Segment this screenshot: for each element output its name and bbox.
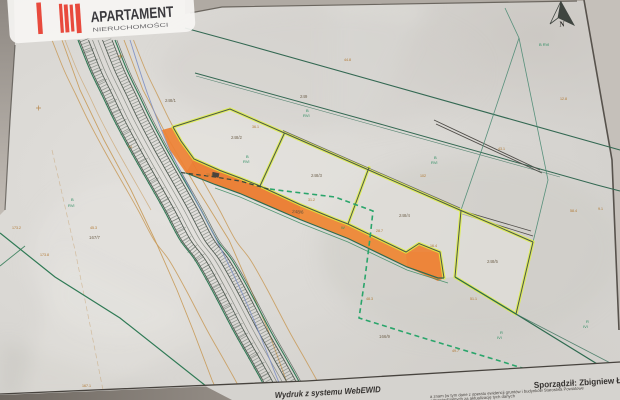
svg-text:248/3: 248/3 — [311, 173, 323, 178]
svg-text:43.1: 43.1 — [498, 147, 505, 151]
svg-text:173.2: 173.2 — [12, 226, 21, 230]
svg-text:IVl: IVl — [583, 324, 588, 329]
svg-text:45.3: 45.3 — [90, 226, 97, 230]
svg-text:248/2: 248/2 — [231, 135, 243, 140]
svg-text:B: B — [71, 197, 74, 202]
svg-text:9.1: 9.1 — [598, 207, 603, 211]
svg-text:W: W — [341, 225, 345, 230]
svg-text:58.4: 58.4 — [570, 209, 577, 213]
svg-text:B RVI: B RVI — [539, 42, 549, 47]
svg-text:249: 249 — [300, 94, 308, 99]
svg-text:36.1: 36.1 — [252, 125, 259, 129]
svg-text:RVI: RVI — [303, 113, 310, 118]
svg-text:12.8: 12.8 — [560, 97, 567, 101]
svg-text:248/6: 248/6 — [292, 209, 304, 215]
svg-text:248/1: 248/1 — [165, 98, 177, 103]
svg-text:IVl: IVl — [497, 335, 502, 340]
svg-text:RVl: RVl — [243, 159, 249, 164]
svg-text:48.3: 48.3 — [366, 297, 373, 301]
svg-text:25.0: 25.0 — [206, 173, 213, 177]
svg-text:31.2: 31.2 — [308, 198, 315, 202]
svg-text:248/4: 248/4 — [399, 213, 411, 218]
svg-text:RVl: RVl — [431, 160, 437, 165]
svg-text:173.8: 173.8 — [40, 253, 49, 257]
svg-text:44.8: 44.8 — [344, 58, 351, 62]
svg-text:248/5: 248/5 — [487, 259, 499, 264]
svg-text:102: 102 — [420, 174, 426, 178]
svg-text:16.4: 16.4 — [430, 244, 437, 248]
svg-text:N: N — [560, 21, 565, 29]
svg-text:167/7: 167/7 — [89, 235, 101, 240]
svg-text:28.7: 28.7 — [376, 229, 383, 233]
svg-text:167.1: 167.1 — [82, 384, 91, 388]
svg-text:166/9: 166/9 — [379, 334, 391, 339]
svg-text:44: 44 — [128, 145, 132, 149]
svg-text:51.1: 51.1 — [470, 297, 477, 301]
svg-text:RVl: RVl — [68, 203, 74, 208]
svg-text:49.7: 49.7 — [452, 349, 459, 353]
